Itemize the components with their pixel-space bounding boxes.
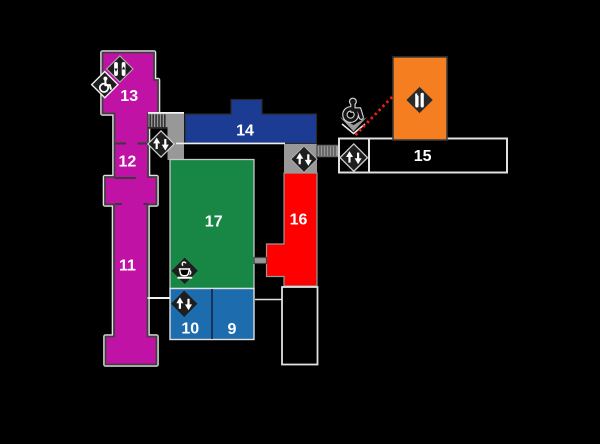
svg-text:10: 10 <box>181 321 199 338</box>
svg-text:11: 11 <box>119 257 136 274</box>
svg-text:17: 17 <box>205 214 223 231</box>
svg-text:12: 12 <box>119 154 137 171</box>
svg-text:16: 16 <box>290 212 308 229</box>
svg-text:14: 14 <box>236 123 254 140</box>
svg-text:13: 13 <box>120 88 138 105</box>
svg-text:9: 9 <box>228 321 237 338</box>
svg-text:15: 15 <box>414 148 432 165</box>
